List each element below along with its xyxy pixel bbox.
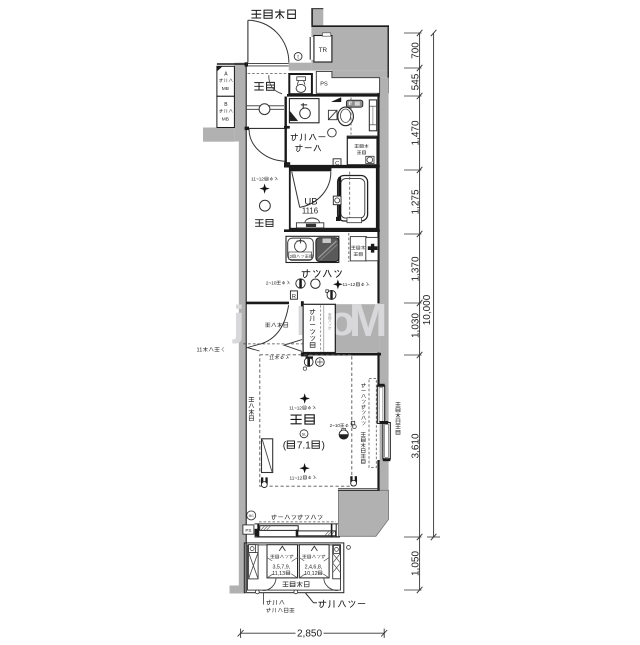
svg-text:): ): [322, 441, 325, 452]
svg-text:10,12: 10,12: [304, 571, 317, 577]
svg-text:7.1: 7.1: [297, 441, 311, 452]
svg-text:1,470: 1,470: [410, 120, 421, 145]
svg-text:(: (: [283, 441, 287, 452]
svg-text:2,850: 2,850: [297, 629, 322, 640]
svg-text:M: M: [349, 294, 387, 346]
svg-text:TR: TR: [319, 47, 328, 54]
svg-text:3,610: 3,610: [410, 433, 421, 458]
svg-text:PS: PS: [320, 82, 328, 88]
svg-text:1,050: 1,050: [410, 551, 421, 576]
svg-text:2,4,6,8,: 2,4,6,8,: [305, 565, 323, 571]
svg-text:1,030: 1,030: [410, 313, 421, 338]
svg-text:1,370: 1,370: [410, 256, 421, 281]
svg-text:MG: MG: [249, 514, 255, 518]
svg-text:1116: 1116: [302, 207, 318, 216]
svg-text:11~12: 11~12: [343, 282, 356, 287]
svg-text:10,000: 10,000: [422, 294, 433, 325]
svg-text:11: 11: [269, 355, 274, 361]
svg-text:545: 545: [410, 73, 421, 90]
svg-text:11~12: 11~12: [290, 475, 303, 480]
svg-text:j: j: [232, 297, 245, 344]
svg-text:MB: MB: [222, 116, 229, 122]
svg-text:11~12: 11~12: [251, 177, 264, 182]
svg-text:SL: SL: [302, 432, 307, 436]
svg-text:700: 700: [410, 42, 421, 59]
svg-text:3,5,7,9,: 3,5,7,9,: [272, 565, 290, 571]
svg-text:11: 11: [197, 348, 203, 354]
svg-text:R: R: [292, 294, 296, 300]
svg-text:1,275: 1,275: [410, 189, 421, 214]
svg-text:MB: MB: [222, 86, 229, 92]
svg-text:11,13: 11,13: [272, 571, 285, 577]
svg-text:2~10: 2~10: [266, 281, 277, 286]
svg-text:2~10: 2~10: [330, 423, 341, 428]
svg-text:PS: PS: [245, 528, 251, 533]
svg-text:11~12: 11~12: [289, 406, 302, 411]
